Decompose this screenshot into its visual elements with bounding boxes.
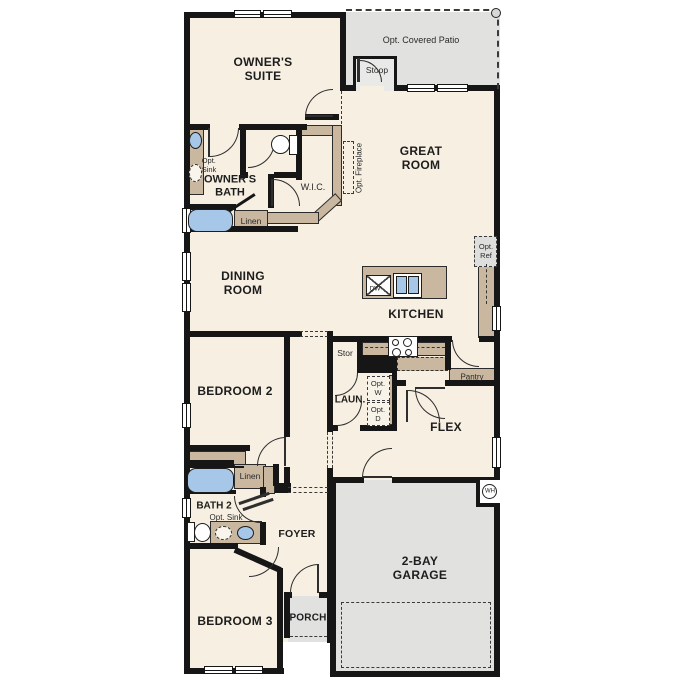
wall [184, 124, 210, 130]
laundry-counter [397, 357, 448, 371]
room-label-flex: FLEX [430, 421, 462, 435]
wic-wall-bottom [266, 212, 319, 224]
stove-burner [403, 338, 412, 347]
bathtub [187, 468, 234, 493]
room-label-kitchen: KITCHEN [388, 308, 443, 322]
cased-opening-foyer [288, 487, 328, 493]
wall [330, 477, 364, 483]
room-label-foyer: FOYER [278, 528, 315, 540]
room-label-bedroom2: BEDROOM 2 [197, 385, 272, 399]
toilet-icon [289, 135, 298, 155]
wall [274, 172, 302, 178]
sink-icon [189, 132, 202, 149]
window [492, 306, 501, 331]
room-label-owners-bath: OWNER'S BATH [204, 173, 256, 198]
wall [494, 85, 500, 677]
porch-dashed-line [290, 636, 327, 638]
wall [184, 543, 238, 549]
door-leaf [362, 476, 392, 478]
great-room-entry-break [341, 91, 343, 124]
label-wic: W.I.C. [301, 182, 326, 192]
opt-sink-icon [215, 526, 232, 540]
wall [479, 336, 494, 342]
window [204, 666, 233, 674]
cased-opening-hall [327, 432, 333, 468]
label-pantry: Pantry [460, 372, 483, 381]
sink-basin [396, 276, 407, 294]
door-leaf [305, 115, 333, 117]
label-stor: Stor [337, 349, 353, 359]
door-leaf [317, 564, 319, 593]
door-leaf [284, 437, 286, 466]
window [182, 252, 191, 281]
room-label-owners-suite: OWNER'S SUITE [234, 56, 293, 84]
room-label-great-room: GREAT ROOM [400, 145, 443, 173]
door-leaf [357, 58, 360, 82]
wall [445, 336, 451, 370]
window [492, 437, 501, 468]
wall [330, 671, 500, 677]
wall [327, 468, 333, 643]
opt-sink-icon [189, 164, 202, 182]
label-linen-lower: Linen [240, 472, 261, 482]
stove-burner [392, 348, 401, 357]
label-opt-ref: Opt. Ref [479, 242, 493, 260]
counter-dashed-line [486, 264, 488, 304]
wall [184, 12, 190, 674]
floor-plan: OWNER'S SUITE Opt. Covered Patio Stoop G… [0, 0, 687, 687]
label-opt-washer: Opt. W [371, 379, 385, 397]
garage-door-outline [341, 602, 491, 668]
door-leaf [208, 128, 210, 157]
window [182, 498, 191, 518]
wall [184, 445, 250, 451]
label-opt-covered-patio: Opt. Covered Patio [383, 35, 460, 45]
wall [397, 380, 406, 386]
window [234, 10, 261, 18]
room-label-garage: 2-BAY GARAGE [393, 555, 447, 583]
stove-burner [405, 349, 412, 356]
door-leaf [271, 179, 273, 206]
yard-cutout [283, 642, 330, 674]
cased-opening-dining [300, 331, 328, 337]
wall [260, 522, 266, 545]
room-label-bedroom3: BEDROOM 3 [197, 615, 272, 629]
label-dw: DW [370, 285, 381, 292]
wall [360, 355, 397, 373]
window [235, 666, 263, 674]
label-linen-upper: Linen [241, 217, 262, 227]
wall [284, 337, 290, 437]
window [182, 283, 191, 312]
wall [184, 668, 284, 674]
sink-icon [237, 526, 254, 540]
label-opt-sink-bath2: Opt. Sink [210, 513, 243, 523]
room-label-porch: PORCH [289, 612, 326, 624]
opt-fireplace-outline [343, 141, 354, 194]
wall [327, 331, 333, 432]
bathtub [188, 209, 233, 232]
door-leaf [406, 390, 408, 422]
room-label-laundry: LAUN. [335, 394, 366, 406]
sink-basin [408, 276, 419, 294]
label-opt-sink-owners: Opt. Sink [202, 156, 217, 174]
label-wh: WH [485, 489, 495, 496]
toilet-icon [194, 523, 211, 542]
label-opt-fireplace: Opt. Fireplace [355, 143, 364, 193]
wall [277, 568, 283, 674]
patio-column [491, 8, 501, 18]
window [182, 403, 191, 428]
toilet-icon [271, 135, 290, 154]
wall [240, 124, 246, 178]
label-opt-dryer: Opt. D [371, 405, 385, 423]
label-stoop: Stoop [366, 66, 388, 76]
room-label-dining: DINING ROOM [221, 270, 265, 298]
room-label-bath2: BATH 2 [196, 500, 231, 512]
window [263, 10, 292, 18]
stove-burner [392, 339, 399, 346]
door-leaf [415, 387, 445, 389]
